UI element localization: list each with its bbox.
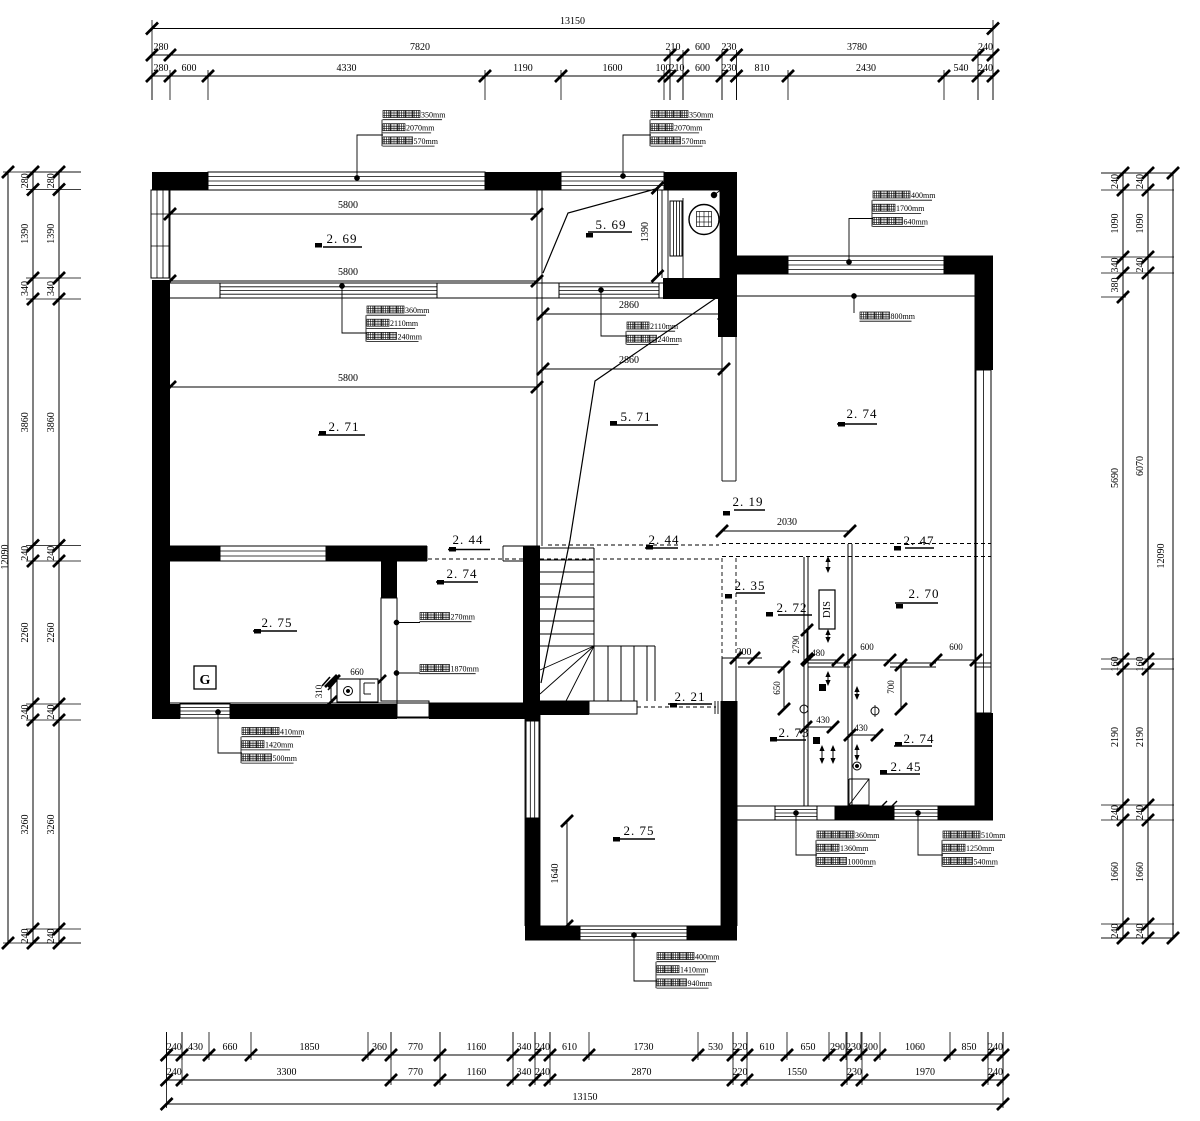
svg-text:240: 240 (1135, 805, 1146, 820)
svg-text:240: 240 (978, 42, 993, 53)
svg-text:300: 300 (863, 1042, 878, 1053)
svg-text:600: 600 (695, 63, 710, 74)
svg-text:540: 540 (954, 63, 969, 74)
svg-text:240: 240 (1135, 924, 1146, 939)
svg-text:210: 210 (670, 63, 685, 74)
svg-text:240: 240 (1135, 258, 1146, 273)
svg-text:2260: 2260 (46, 623, 57, 643)
svg-text:1060: 1060 (905, 1042, 925, 1053)
svg-text:G: G (200, 673, 211, 688)
svg-text:240: 240 (988, 1042, 1003, 1053)
svg-text:1550: 1550 (787, 1067, 807, 1078)
svg-text:3260: 3260 (20, 815, 31, 835)
svg-text:240: 240 (167, 1042, 182, 1053)
svg-text:940mm: 940mm (688, 979, 713, 988)
svg-text:400mm: 400mm (911, 191, 936, 200)
svg-text:1700mm: 1700mm (896, 204, 925, 213)
svg-text:340: 340 (46, 281, 57, 296)
svg-text:3260: 3260 (46, 815, 57, 835)
svg-text:280: 280 (46, 173, 57, 188)
svg-text:230: 230 (722, 63, 737, 74)
svg-text:3780: 3780 (847, 42, 867, 53)
svg-text:240: 240 (167, 1067, 182, 1078)
svg-text:2070mm: 2070mm (406, 124, 435, 133)
svg-text:340: 340 (20, 281, 31, 296)
svg-text:1390: 1390 (20, 224, 31, 244)
svg-text:280: 280 (154, 63, 169, 74)
svg-text:2. 73: 2. 73 (779, 725, 810, 740)
svg-text:340: 340 (517, 1042, 532, 1053)
svg-text:240: 240 (988, 1067, 1003, 1078)
svg-text:2. 45: 2. 45 (891, 759, 922, 774)
svg-text:2. 70: 2. 70 (909, 586, 940, 601)
svg-text:270mm: 270mm (451, 613, 476, 622)
svg-text:1250mm: 1250mm (966, 844, 995, 853)
svg-text:3860: 3860 (46, 412, 57, 432)
svg-text:240: 240 (1135, 174, 1146, 189)
svg-text:280: 280 (20, 173, 31, 188)
svg-text:230: 230 (847, 1067, 862, 1078)
svg-text:12090: 12090 (1156, 544, 1167, 569)
svg-text:640mm: 640mm (904, 217, 929, 226)
svg-text:2860: 2860 (619, 355, 639, 366)
svg-text:480: 480 (811, 648, 825, 658)
svg-text:2. 35: 2. 35 (735, 578, 766, 593)
svg-text:350mm: 350mm (689, 111, 714, 120)
svg-text:240: 240 (978, 63, 993, 74)
svg-text:2. 74: 2. 74 (447, 566, 478, 581)
svg-text:650: 650 (801, 1042, 816, 1053)
svg-text:5. 69: 5. 69 (596, 217, 627, 232)
svg-text:1870mm: 1870mm (451, 665, 480, 674)
svg-text:2. 75: 2. 75 (262, 615, 293, 630)
svg-text:610: 610 (562, 1042, 577, 1053)
svg-text:7820: 7820 (410, 42, 430, 53)
svg-text:380: 380 (1110, 278, 1121, 293)
svg-text:800mm: 800mm (891, 312, 916, 321)
svg-text:230: 230 (722, 42, 737, 53)
svg-text:570mm: 570mm (682, 137, 707, 146)
svg-text:770: 770 (408, 1042, 423, 1053)
svg-text:240: 240 (46, 705, 57, 720)
svg-text:2430: 2430 (856, 63, 876, 74)
svg-text:5800: 5800 (338, 200, 358, 211)
svg-text:13150: 13150 (560, 16, 585, 27)
svg-text:340: 340 (1110, 258, 1121, 273)
svg-text:280: 280 (154, 42, 169, 53)
svg-text:430: 430 (816, 715, 830, 725)
svg-text:770: 770 (408, 1067, 423, 1078)
svg-text:1730: 1730 (634, 1042, 654, 1053)
svg-text:600: 600 (949, 642, 963, 652)
svg-text:2110mm: 2110mm (650, 322, 679, 331)
svg-text:2. 44: 2. 44 (453, 532, 484, 547)
svg-text:2870: 2870 (632, 1067, 652, 1078)
svg-text:2790: 2790 (791, 635, 801, 654)
svg-text:240: 240 (46, 929, 57, 944)
svg-text:360: 360 (372, 1042, 387, 1053)
svg-text:1160: 1160 (467, 1042, 487, 1053)
svg-text:1390: 1390 (46, 224, 57, 244)
svg-text:660: 660 (350, 667, 364, 677)
svg-text:240: 240 (46, 546, 57, 561)
svg-text:5800: 5800 (338, 373, 358, 384)
svg-text:1090: 1090 (1110, 214, 1121, 234)
svg-text:360mm: 360mm (405, 306, 430, 315)
svg-text:2070mm: 2070mm (674, 124, 703, 133)
svg-text:DIS: DIS (822, 601, 833, 618)
svg-text:240mm: 240mm (398, 332, 423, 341)
svg-text:2. 69: 2. 69 (327, 231, 358, 246)
svg-text:240: 240 (535, 1042, 550, 1053)
svg-text:240: 240 (535, 1067, 550, 1078)
svg-text:1640: 1640 (550, 864, 561, 884)
svg-text:3860: 3860 (20, 412, 31, 432)
svg-text:1360mm: 1360mm (840, 844, 869, 853)
svg-text:210: 210 (666, 42, 681, 53)
svg-text:3300: 3300 (277, 1067, 297, 1078)
svg-text:2. 71: 2. 71 (329, 419, 360, 434)
svg-text:220: 220 (733, 1067, 748, 1078)
svg-text:2110mm: 2110mm (390, 319, 419, 328)
svg-text:2. 72: 2. 72 (777, 600, 808, 615)
svg-text:240: 240 (1110, 924, 1121, 939)
svg-text:410mm: 410mm (280, 728, 305, 737)
svg-text:5. 71: 5. 71 (621, 409, 652, 424)
svg-text:700: 700 (886, 680, 896, 694)
svg-text:1850: 1850 (300, 1042, 320, 1053)
svg-text:1390: 1390 (640, 222, 651, 242)
svg-text:2. 44: 2. 44 (649, 532, 680, 547)
svg-text:500mm: 500mm (273, 754, 298, 763)
svg-text:1660: 1660 (1135, 862, 1146, 882)
svg-text:200: 200 (737, 647, 752, 658)
svg-text:2260: 2260 (20, 623, 31, 643)
svg-text:1090: 1090 (1135, 214, 1146, 234)
svg-text:290: 290 (830, 1042, 845, 1053)
svg-text:600: 600 (860, 642, 874, 652)
svg-text:1000mm: 1000mm (848, 857, 877, 866)
svg-text:12090: 12090 (0, 545, 11, 570)
svg-text:1420mm: 1420mm (265, 741, 294, 750)
svg-text:220: 220 (733, 1042, 748, 1053)
svg-text:5690: 5690 (1110, 468, 1121, 488)
svg-text:1190: 1190 (513, 63, 533, 74)
svg-text:5800: 5800 (338, 267, 358, 278)
svg-text:240: 240 (1110, 805, 1121, 820)
svg-text:660: 660 (223, 1042, 238, 1053)
svg-text:2. 19: 2. 19 (733, 494, 764, 509)
svg-text:240: 240 (20, 929, 31, 944)
svg-text:4330: 4330 (337, 63, 357, 74)
svg-text:100: 100 (656, 63, 671, 74)
svg-text:1160: 1160 (467, 1067, 487, 1078)
svg-text:2190: 2190 (1110, 727, 1121, 747)
svg-text:6070: 6070 (1135, 456, 1146, 476)
svg-text:2. 75: 2. 75 (624, 823, 655, 838)
svg-text:1970: 1970 (915, 1067, 935, 1078)
svg-text:850: 850 (962, 1042, 977, 1053)
svg-text:600: 600 (182, 63, 197, 74)
svg-text:2. 74: 2. 74 (847, 406, 878, 421)
svg-text:2. 74: 2. 74 (904, 731, 935, 746)
svg-text:2860: 2860 (619, 300, 639, 311)
svg-text:240mm: 240mm (658, 335, 683, 344)
svg-text:1660: 1660 (1110, 862, 1121, 882)
svg-text:2030: 2030 (777, 517, 797, 528)
svg-text:540mm: 540mm (974, 857, 999, 866)
svg-text:2. 21: 2. 21 (675, 689, 706, 704)
svg-text:400mm: 400mm (695, 953, 720, 962)
svg-text:230: 230 (846, 1042, 861, 1053)
svg-text:340: 340 (517, 1067, 532, 1078)
svg-text:810: 810 (755, 63, 770, 74)
svg-text:240: 240 (20, 705, 31, 720)
svg-text:570mm: 570mm (414, 137, 439, 146)
svg-text:2190: 2190 (1135, 727, 1146, 747)
svg-text:360mm: 360mm (855, 831, 880, 840)
svg-text:510mm: 510mm (981, 831, 1006, 840)
svg-text:430: 430 (854, 723, 868, 733)
svg-text:600: 600 (695, 42, 710, 53)
svg-text:13150: 13150 (573, 1092, 598, 1103)
svg-text:1410mm: 1410mm (680, 966, 709, 975)
svg-text:350mm: 350mm (421, 111, 446, 120)
svg-text:530: 530 (708, 1042, 723, 1053)
svg-text:2. 47: 2. 47 (904, 533, 935, 548)
svg-text:240: 240 (1110, 174, 1121, 189)
svg-text:650: 650 (772, 681, 782, 695)
svg-text:240: 240 (20, 546, 31, 561)
svg-text:430: 430 (188, 1042, 203, 1053)
svg-text:610: 610 (760, 1042, 775, 1053)
svg-text:1600: 1600 (603, 63, 623, 74)
